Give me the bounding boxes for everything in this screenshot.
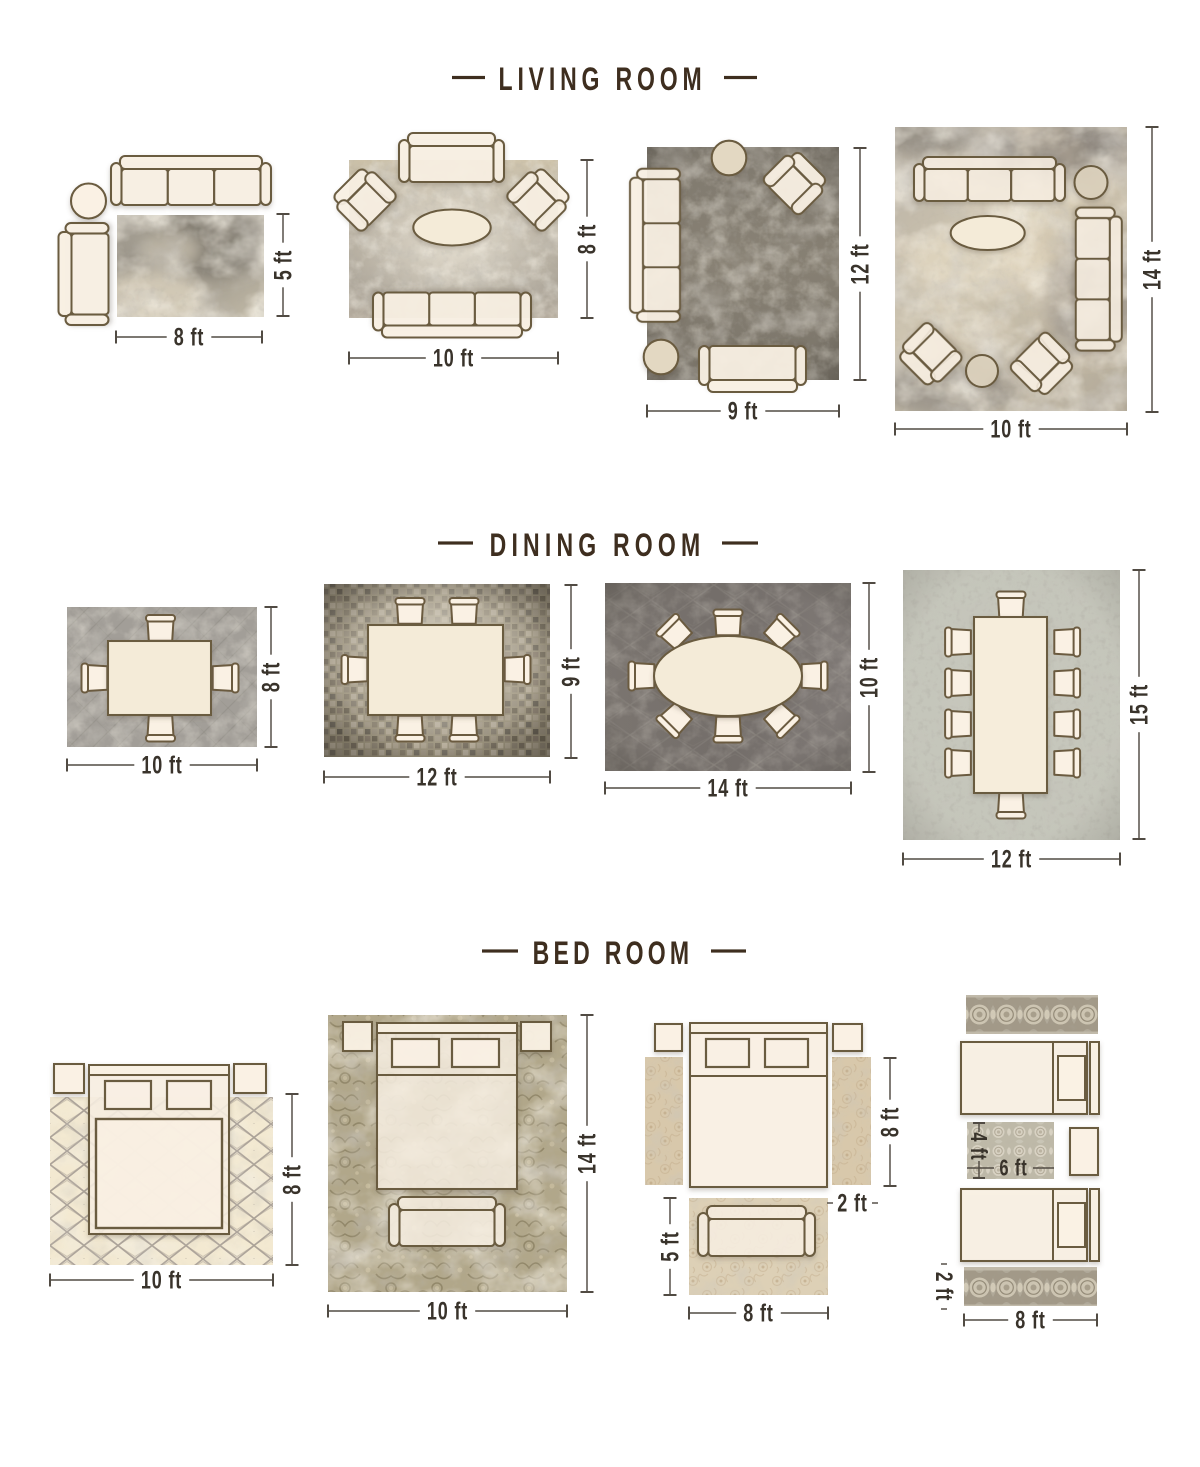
svg-text:14 ft: 14 ft xyxy=(707,774,748,803)
svg-text:9 ft: 9 ft xyxy=(557,656,586,686)
svg-text:10 ft: 10 ft xyxy=(433,344,474,373)
svg-text:DINING ROOM: DINING ROOM xyxy=(490,527,706,563)
svg-text:8 ft: 8 ft xyxy=(743,1299,773,1328)
svg-text:8 ft: 8 ft xyxy=(257,662,286,692)
svg-text:12 ft: 12 ft xyxy=(991,845,1032,874)
svg-text:5 ft: 5 ft xyxy=(269,250,298,280)
svg-text:15 ft: 15 ft xyxy=(1125,684,1154,725)
svg-text:12 ft: 12 ft xyxy=(416,763,457,792)
svg-text:LIVING ROOM: LIVING ROOM xyxy=(499,61,707,97)
svg-text:8 ft: 8 ft xyxy=(174,323,204,352)
svg-text:2 ft: 2 ft xyxy=(837,1189,867,1218)
svg-text:4 ft: 4 ft xyxy=(965,1132,990,1160)
svg-text:14 ft: 14 ft xyxy=(573,1133,602,1174)
svg-text:5 ft: 5 ft xyxy=(656,1231,685,1261)
svg-text:2 ft: 2 ft xyxy=(930,1272,956,1301)
svg-text:14 ft: 14 ft xyxy=(1138,249,1167,290)
svg-text:10 ft: 10 ft xyxy=(427,1297,468,1326)
svg-text:8 ft: 8 ft xyxy=(573,224,602,254)
svg-text:12 ft: 12 ft xyxy=(846,243,875,284)
svg-text:8 ft: 8 ft xyxy=(876,1107,905,1137)
svg-text:8 ft: 8 ft xyxy=(1015,1306,1045,1335)
svg-text:6 ft: 6 ft xyxy=(999,1156,1027,1181)
svg-text:10 ft: 10 ft xyxy=(141,1266,182,1295)
svg-text:10 ft: 10 ft xyxy=(990,415,1031,444)
svg-text:10 ft: 10 ft xyxy=(141,751,182,780)
svg-text:9 ft: 9 ft xyxy=(728,397,758,426)
svg-text:10 ft: 10 ft xyxy=(855,657,884,698)
svg-text:8 ft: 8 ft xyxy=(278,1164,307,1194)
svg-text:BED ROOM: BED ROOM xyxy=(533,935,694,971)
